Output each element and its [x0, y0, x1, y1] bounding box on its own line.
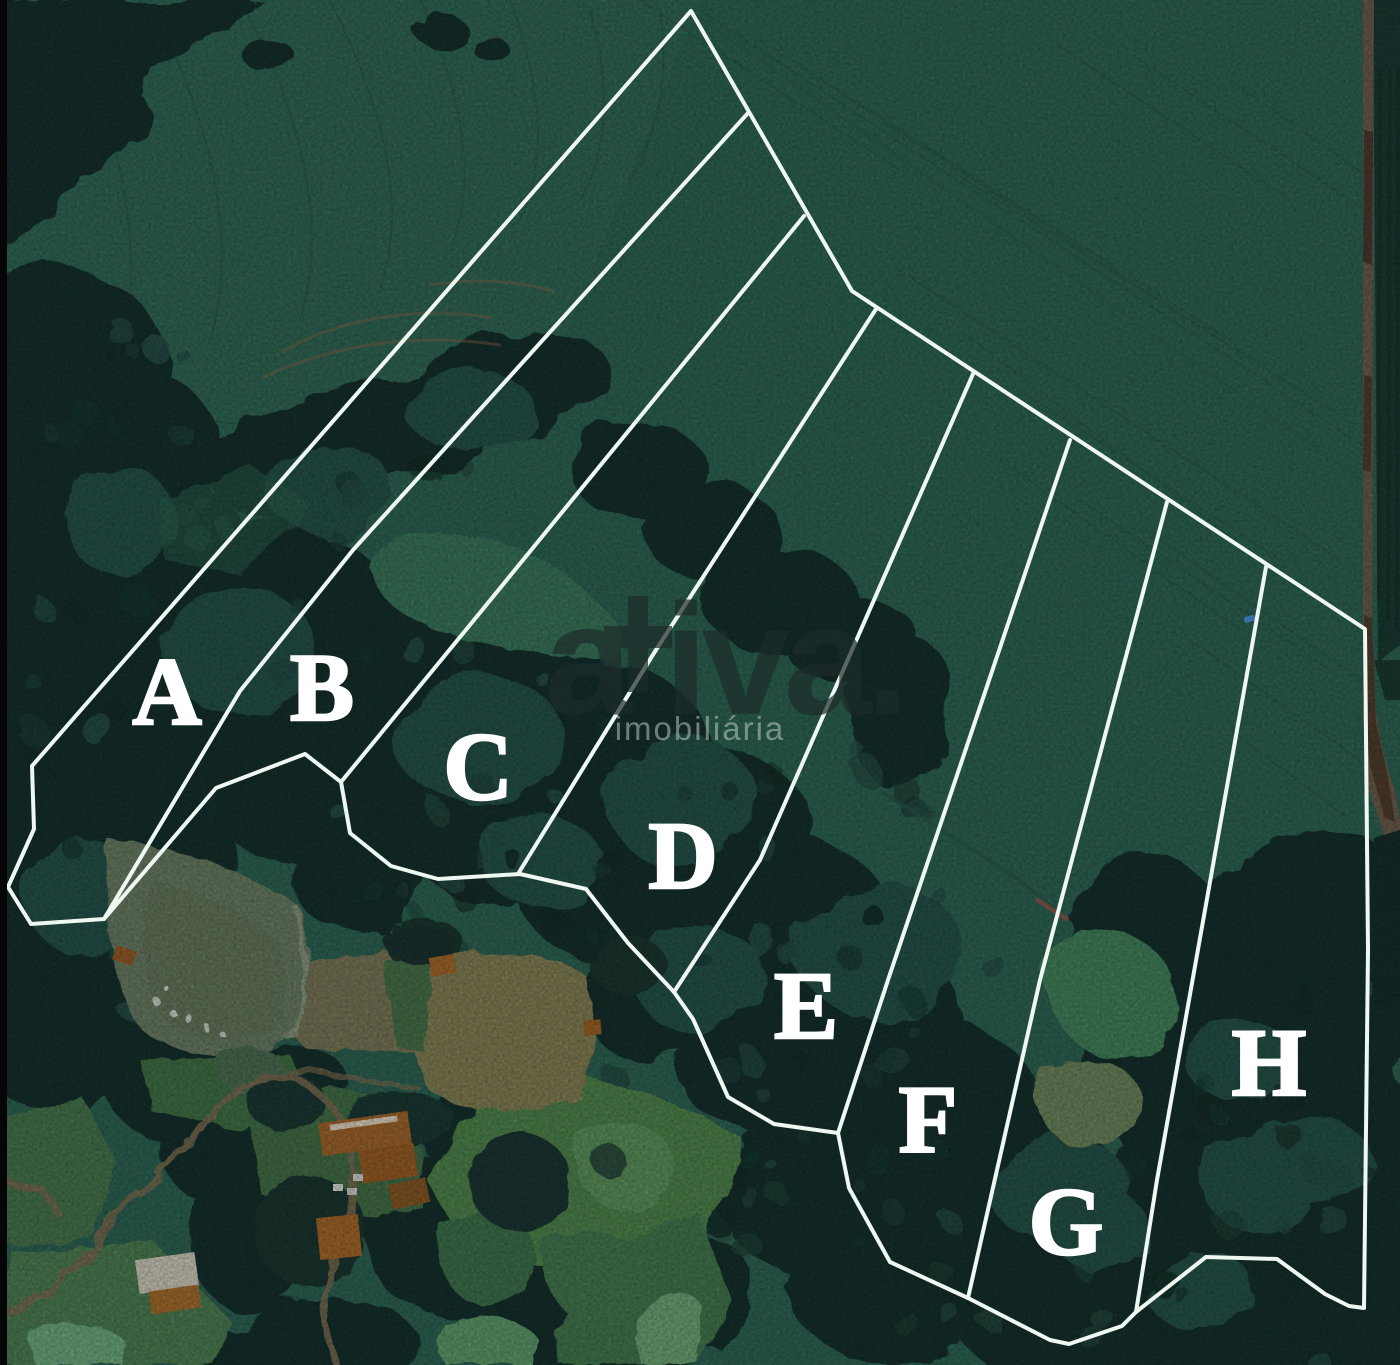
svg-text:E: E: [774, 952, 838, 1059]
svg-text:A: A: [132, 638, 201, 745]
svg-text:C: C: [443, 713, 512, 820]
svg-text:imobiliária: imobiliária: [615, 710, 786, 747]
svg-text:F: F: [899, 1066, 958, 1173]
svg-text:D: D: [648, 802, 717, 909]
svg-text:H: H: [1232, 1009, 1307, 1116]
svg-text:G: G: [1029, 1168, 1104, 1275]
svg-text:B: B: [290, 634, 354, 741]
